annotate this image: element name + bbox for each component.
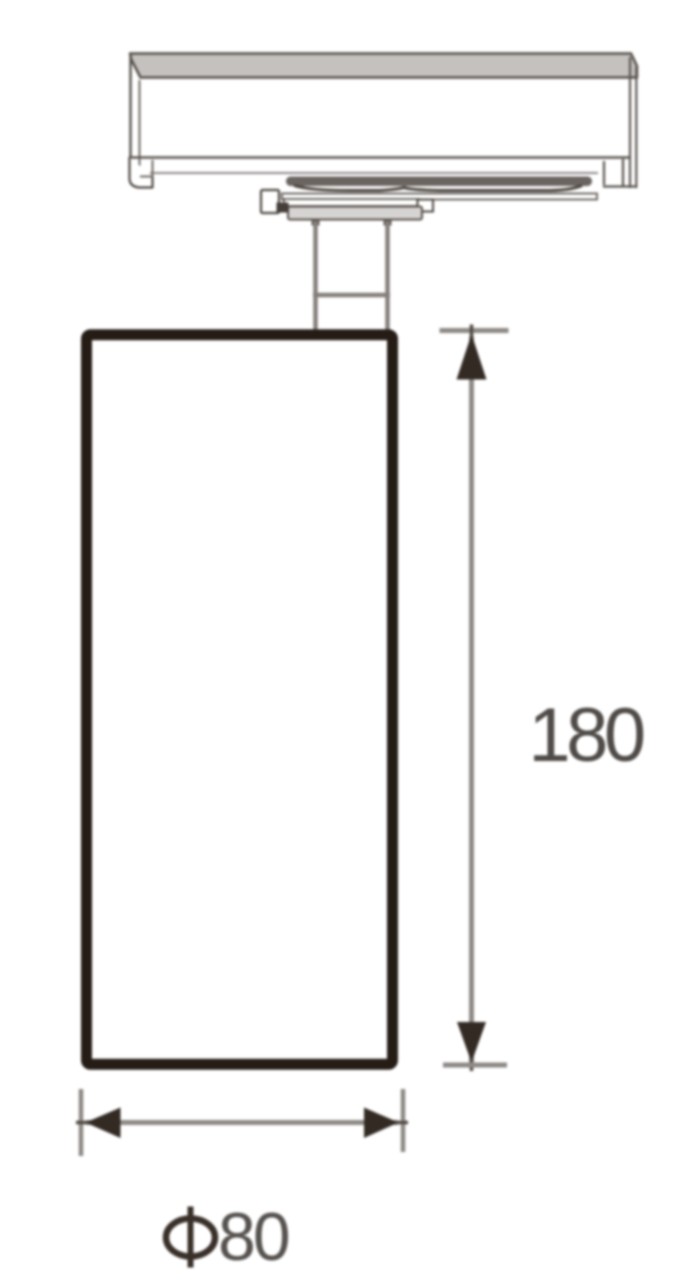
svg-text:80: 80 xyxy=(218,1199,289,1275)
svg-text:180: 180 xyxy=(528,693,644,778)
